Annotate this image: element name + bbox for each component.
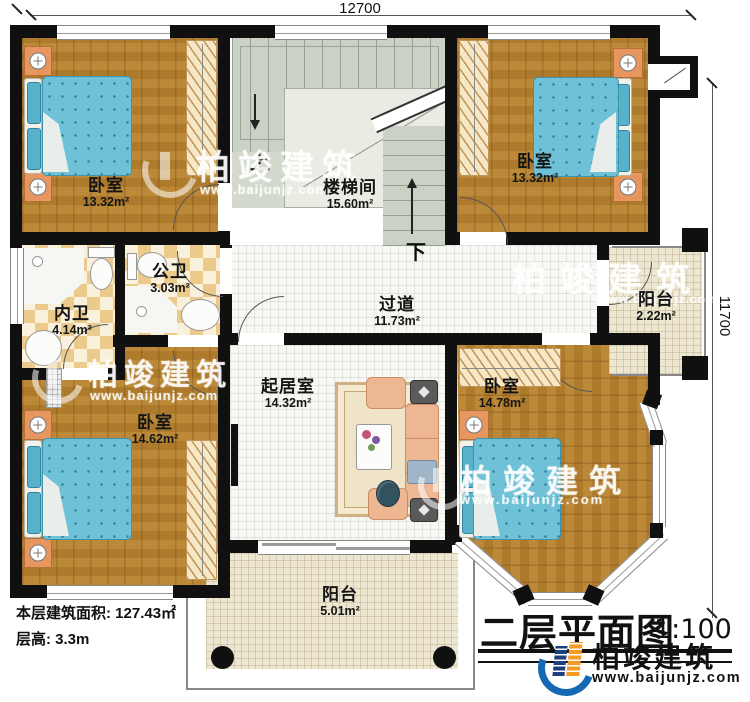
sliding-door-panel — [336, 547, 410, 550]
room-label-bedroom-bl: 卧室 14.62m² — [115, 413, 195, 446]
room-area: 3.03m² — [140, 281, 200, 295]
room-name: 内卫 — [42, 304, 102, 323]
room-label-living: 起居室 14.32m² — [243, 377, 333, 410]
pillow — [27, 492, 41, 534]
stair-arrow-down-head — [407, 178, 417, 188]
room-area: 14.32m² — [243, 396, 333, 410]
flowers — [362, 430, 371, 439]
balcony-column — [211, 646, 234, 669]
room-label-corridor: 过道 11.73m² — [357, 295, 437, 328]
wardrobe — [186, 440, 217, 580]
room-label-public-bath: 公卫 3.03m² — [140, 262, 200, 295]
lamp-icon — [30, 417, 47, 434]
door-opening — [542, 333, 590, 345]
toilet-tank — [127, 253, 137, 280]
stair-arrow-down — [411, 188, 413, 234]
room-area: 5.01m² — [305, 604, 375, 618]
toilet-tank — [88, 247, 115, 258]
dim-tick — [11, 3, 22, 14]
nightstand — [24, 538, 52, 568]
room-area: 13.32m² — [495, 171, 575, 185]
watermark-logo-icon — [160, 152, 170, 180]
bay-window — [652, 443, 666, 527]
room-name: 卧室 — [495, 152, 575, 171]
room-name: 过道 — [357, 295, 437, 314]
flowers — [368, 444, 375, 451]
room-label-balcony-bottom: 阳台 5.01m² — [305, 585, 375, 618]
lamp-icon — [620, 179, 637, 196]
side-table — [410, 380, 438, 404]
balcony-bottom-rail — [186, 588, 188, 690]
stair-arrow-up-head — [250, 120, 260, 130]
right-dimension-line — [712, 84, 713, 618]
toilet — [90, 258, 113, 290]
room-area: 4.14m² — [42, 323, 102, 337]
lamp-icon — [30, 53, 47, 70]
shower-drain — [136, 306, 147, 317]
window — [488, 25, 610, 40]
tv — [231, 424, 238, 486]
room-label-inner-bath: 内卫 4.14m² — [42, 304, 102, 337]
wall — [10, 232, 230, 245]
plant — [376, 480, 400, 507]
nightstand — [24, 172, 52, 202]
bay-corner-post — [650, 430, 663, 445]
top-dimension-label: 12700 — [320, 0, 400, 17]
flowers — [372, 436, 380, 444]
room-name: 卧室 — [462, 377, 542, 396]
room-name: 卧室 — [66, 176, 146, 195]
room-label-bedroom-tr: 卧室 13.32m² — [495, 152, 575, 185]
nightstand — [613, 48, 643, 78]
lamp-icon — [620, 55, 637, 72]
watermark-logo-icon — [48, 360, 57, 386]
room-label-bedroom-right: 卧室 14.78m² — [462, 377, 542, 410]
nightstand — [24, 46, 52, 76]
sliding-door-panel — [262, 543, 336, 546]
room-label-bedroom-tl: 卧室 13.32m² — [66, 176, 146, 209]
watermark-url: www.baijunjz.com — [90, 388, 218, 403]
lamp-icon — [30, 545, 47, 562]
room-name: 公卫 — [140, 262, 200, 281]
shower-drain — [32, 256, 43, 267]
wall — [218, 231, 230, 245]
watermark-logo-icon — [433, 468, 442, 492]
brand-website: www.baijunjz.com — [592, 670, 741, 686]
right-dimension-label: 11700 — [717, 286, 733, 346]
sink — [181, 299, 220, 331]
balcony-column — [682, 228, 708, 252]
window — [10, 248, 24, 324]
bay-corner-post — [650, 523, 663, 538]
balcony-column — [433, 646, 456, 669]
balcony-column — [682, 356, 708, 380]
wardrobe — [459, 40, 489, 176]
window — [47, 585, 173, 600]
lamp-icon — [466, 417, 483, 434]
room-label-stairwell: 楼梯间 15.60m² — [305, 178, 395, 211]
stair-arrow-up — [254, 94, 256, 120]
room-area: 15.60m² — [305, 197, 395, 211]
balcony-bottom-rail — [473, 560, 475, 690]
room-name: 楼梯间 — [305, 178, 395, 197]
window — [57, 25, 170, 40]
nightstand — [613, 172, 643, 202]
floor-plan: 12700 11700 上 下 — [0, 0, 750, 702]
room-area: 14.62m² — [115, 432, 195, 446]
room-area: 2.22m² — [626, 309, 686, 323]
room-name: 阳台 — [305, 585, 375, 604]
pillow — [27, 446, 41, 488]
room-area: 14.78m² — [462, 396, 542, 410]
watermark-url: www.baijunjz.com — [460, 492, 604, 507]
room-name: 阳台 — [626, 290, 686, 309]
door-opening — [168, 335, 218, 347]
wall — [445, 25, 457, 245]
room-name: 卧室 — [115, 413, 195, 432]
pillow — [27, 82, 41, 124]
pillow — [27, 128, 41, 170]
room-name: 起居室 — [243, 377, 333, 396]
stair-down-label: 下 — [406, 236, 426, 265]
window — [648, 64, 660, 90]
armchair — [366, 377, 406, 409]
floor-area-text: 本层建筑面积: 127.43㎡ — [16, 602, 176, 623]
room-label-balcony-right: 阳台 2.22m² — [626, 290, 686, 323]
floor-height-text: 层高: 3.3m — [16, 628, 89, 649]
window — [275, 25, 387, 40]
nightstand — [24, 410, 52, 440]
nightstand — [459, 410, 489, 440]
balcony-bottom-rail — [186, 688, 475, 690]
room-area: 11.73m² — [357, 314, 437, 328]
wall — [445, 345, 457, 545]
lamp-icon — [30, 179, 47, 196]
room-area: 13.32m² — [66, 195, 146, 209]
